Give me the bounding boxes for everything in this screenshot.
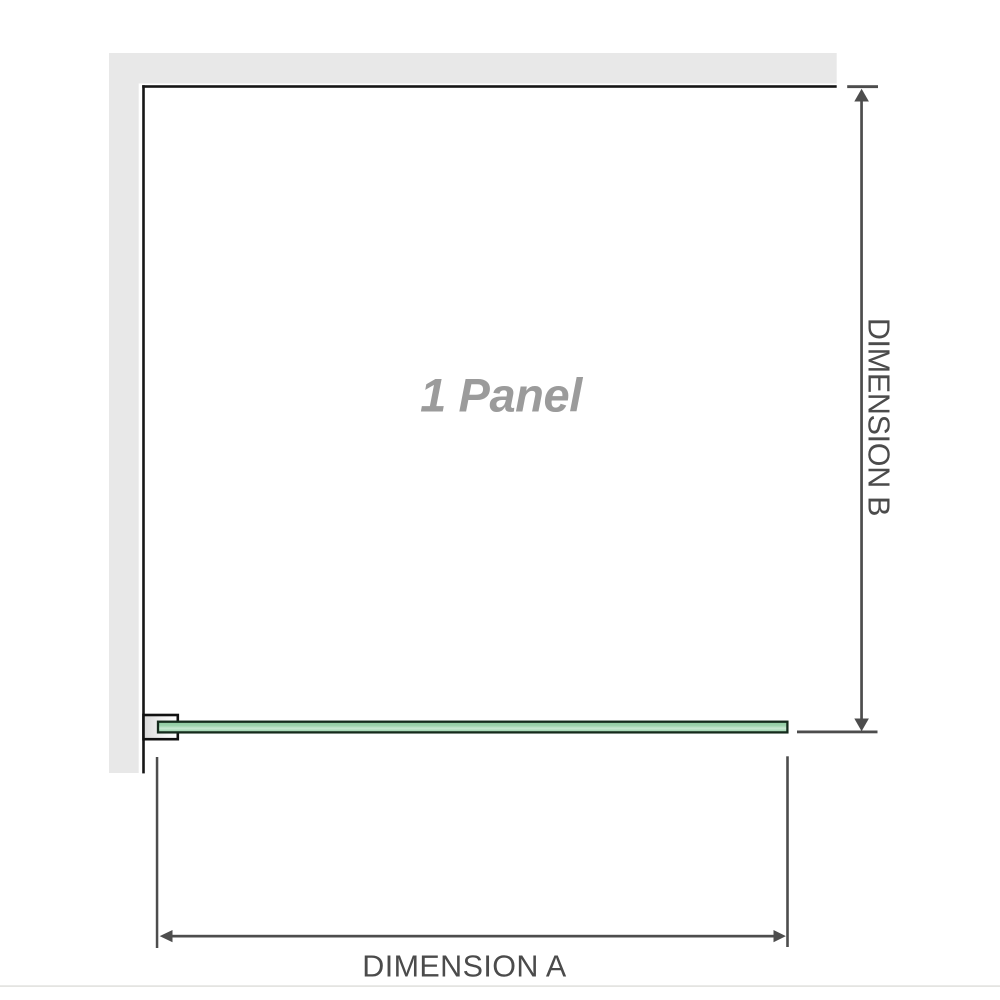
svg-text:1 Panel: 1 Panel — [420, 369, 583, 422]
svg-text:DIMENSION B: DIMENSION B — [862, 318, 896, 516]
svg-text:DIMENSION A: DIMENSION A — [362, 950, 567, 984]
